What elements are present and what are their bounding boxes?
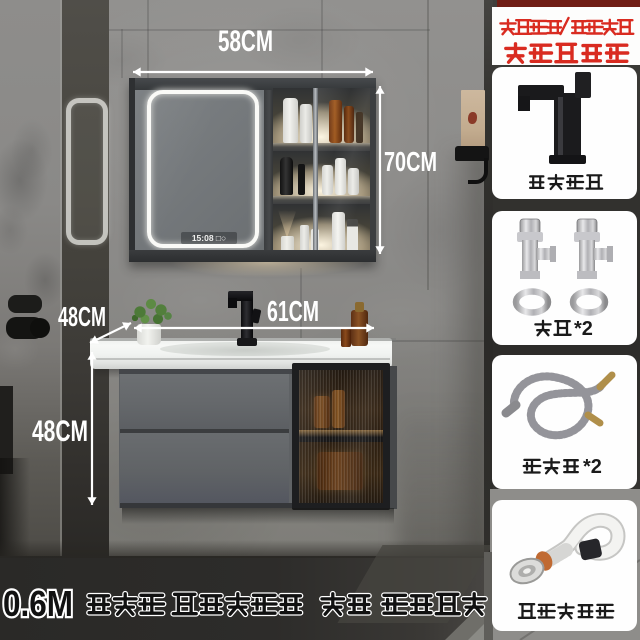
svg-text:61CM: 61CM: [267, 296, 319, 328]
svg-text:0.6M: 0.6M: [3, 583, 73, 624]
svg-text:48CM: 48CM: [32, 415, 88, 448]
svg-text:48CM: 48CM: [58, 301, 106, 332]
svg-text:70CM: 70CM: [384, 146, 437, 177]
svg-text:*2: *2: [583, 456, 602, 478]
svg-text:*2: *2: [574, 318, 593, 340]
svg-text:58CM: 58CM: [218, 25, 273, 58]
